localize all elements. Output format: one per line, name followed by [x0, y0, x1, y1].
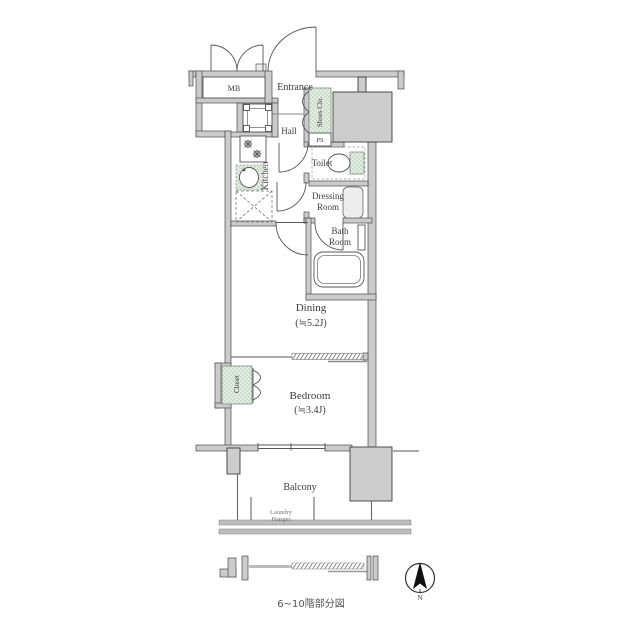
- bath-label-2: Room: [329, 237, 351, 247]
- floorplan-page: MB Entrance Shoes Clo. PS Hall Kitchen T…: [0, 0, 628, 640]
- door-jamb-block: [256, 64, 266, 71]
- kitchen-label: Kitchen: [260, 161, 270, 190]
- hall-label: Hall: [281, 126, 297, 136]
- refrigerator-space: [236, 191, 272, 222]
- bath-label-1: Bath: [332, 226, 349, 236]
- floor-caption: 6~10階部分図: [277, 597, 344, 610]
- washbasin: [343, 187, 363, 218]
- balcony-rail-outer: [219, 520, 411, 525]
- toilet-label: Toilet: [312, 158, 333, 168]
- ps-label: PS: [316, 137, 324, 144]
- sink-basin: [240, 168, 259, 188]
- toilet-tank: [350, 152, 364, 174]
- entrance-door: [268, 27, 316, 71]
- bath-counter: [358, 225, 365, 250]
- balcony-rail-edge: [219, 529, 411, 534]
- dining-label: Dining: [296, 302, 327, 314]
- mb-label: MB: [228, 84, 240, 93]
- balcony-sliding-window: [258, 443, 325, 451]
- floorplan-drawing: MB Entrance Shoes Clo. PS Hall Kitchen T…: [0, 0, 628, 640]
- bedroom-label: Bedroom: [290, 390, 331, 402]
- bedroom-size-label: (≒3.4J): [294, 405, 325, 416]
- dressing-label-2: Room: [317, 202, 339, 212]
- laundry-label-2: Hanger: [271, 516, 291, 523]
- entrance-label: Entrance: [277, 82, 313, 93]
- balcony-pillar: [227, 448, 240, 474]
- closet-area: [222, 366, 261, 404]
- column-top-right: [333, 92, 392, 142]
- stove: [240, 136, 266, 162]
- compass-north-label: N: [417, 594, 422, 602]
- dressing-room-door: [277, 182, 306, 211]
- column-bottom-right: [350, 447, 392, 501]
- bathtub: [314, 252, 364, 287]
- dressing-label-1: Dressing: [312, 191, 344, 201]
- adjacent-unit-outline: [220, 556, 378, 580]
- compass: [406, 562, 435, 593]
- sliding-partition: [231, 354, 367, 362]
- hall-dining-door: [276, 223, 308, 256]
- mb-double-doors: [211, 45, 263, 71]
- column-stem: [358, 77, 366, 93]
- shoes-closet-label: Shoes Clo.: [316, 97, 324, 128]
- closet-folding-doors: [253, 368, 261, 403]
- balcony-label: Balcony: [283, 482, 316, 493]
- laundry-label-1: Laundry: [270, 509, 293, 516]
- washing-machine-pan: [243, 104, 272, 132]
- faucet-icon: [243, 169, 246, 172]
- toilet-door: [279, 143, 308, 172]
- dining-size-label: (≒5.2J): [295, 318, 326, 329]
- closet-label: Closet: [233, 375, 241, 393]
